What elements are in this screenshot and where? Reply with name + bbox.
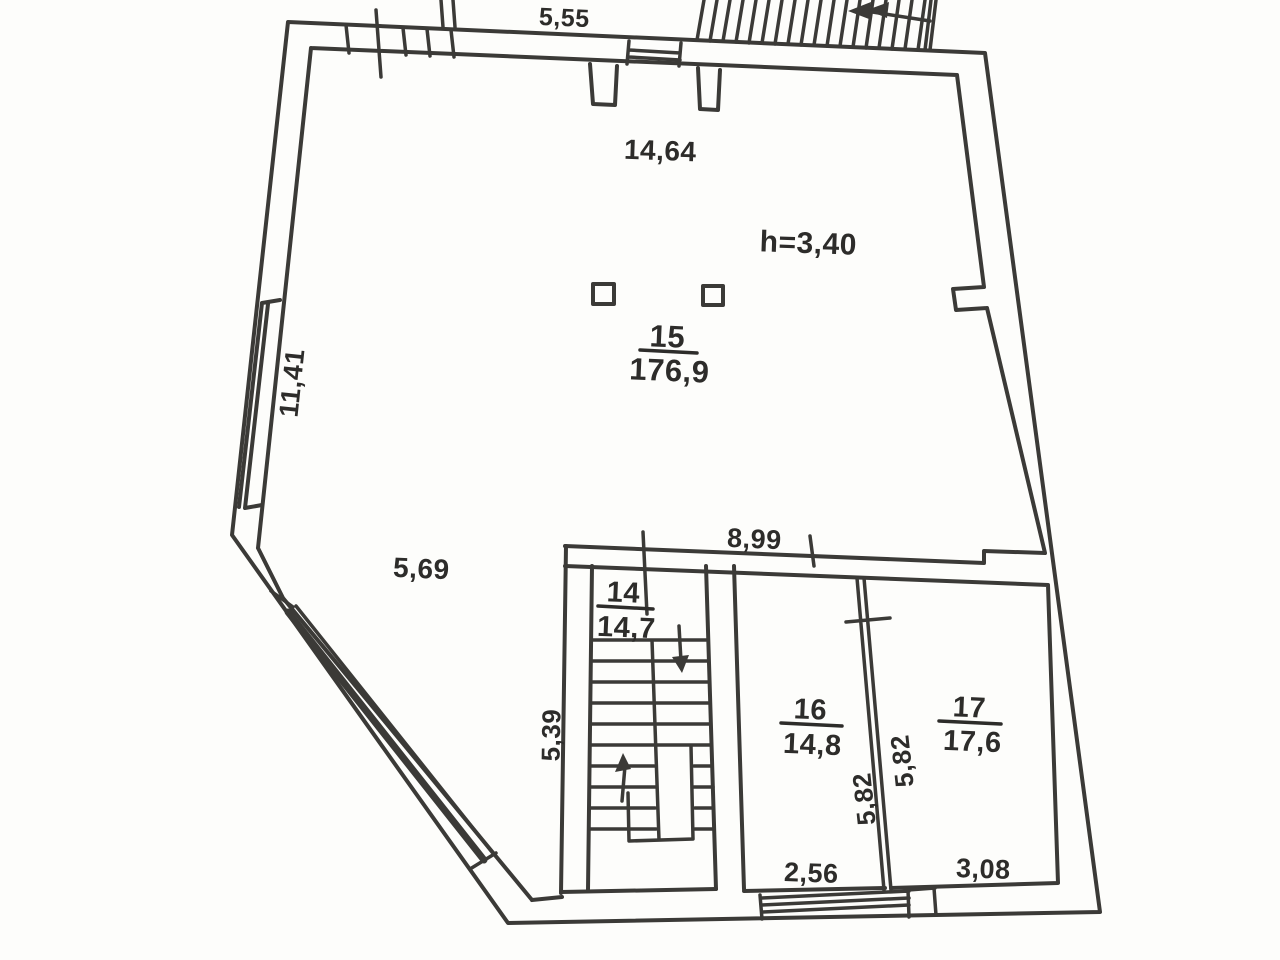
room16-area: 14,8 xyxy=(782,728,842,763)
room17-area: 17,6 xyxy=(942,725,1002,760)
ceiling-height-note: h=3,40 xyxy=(759,225,857,261)
floor-plan-canvas: 5,55 14,64 h=3,40 15 176,9 11,41 5,69 8,… xyxy=(0,0,1280,960)
dim-diagonal-wall: 5,69 xyxy=(393,552,451,585)
room15-number: 15 xyxy=(649,318,686,355)
dim-hall-band: 8,99 xyxy=(726,523,782,555)
room14-number: 14 xyxy=(606,576,641,609)
dim-partition-right: 5,82 xyxy=(884,733,919,788)
room14-area: 14,7 xyxy=(596,611,656,646)
dim-room16-width: 2,56 xyxy=(784,857,840,889)
room16-number: 16 xyxy=(793,693,828,726)
dim-room17-width: 3,08 xyxy=(956,853,1012,885)
floor-plan-page: 5,55 14,64 h=3,40 15 176,9 11,41 5,69 8,… xyxy=(0,0,1280,960)
room17-number: 17 xyxy=(952,691,987,724)
dim-hall-width: 14,64 xyxy=(624,134,698,168)
dim-partition-left: 5,82 xyxy=(846,771,881,826)
dim-stairwell-depth: 5,39 xyxy=(536,708,567,761)
dim-top-exterior: 5,55 xyxy=(538,3,590,33)
room15-area: 176,9 xyxy=(629,351,711,389)
